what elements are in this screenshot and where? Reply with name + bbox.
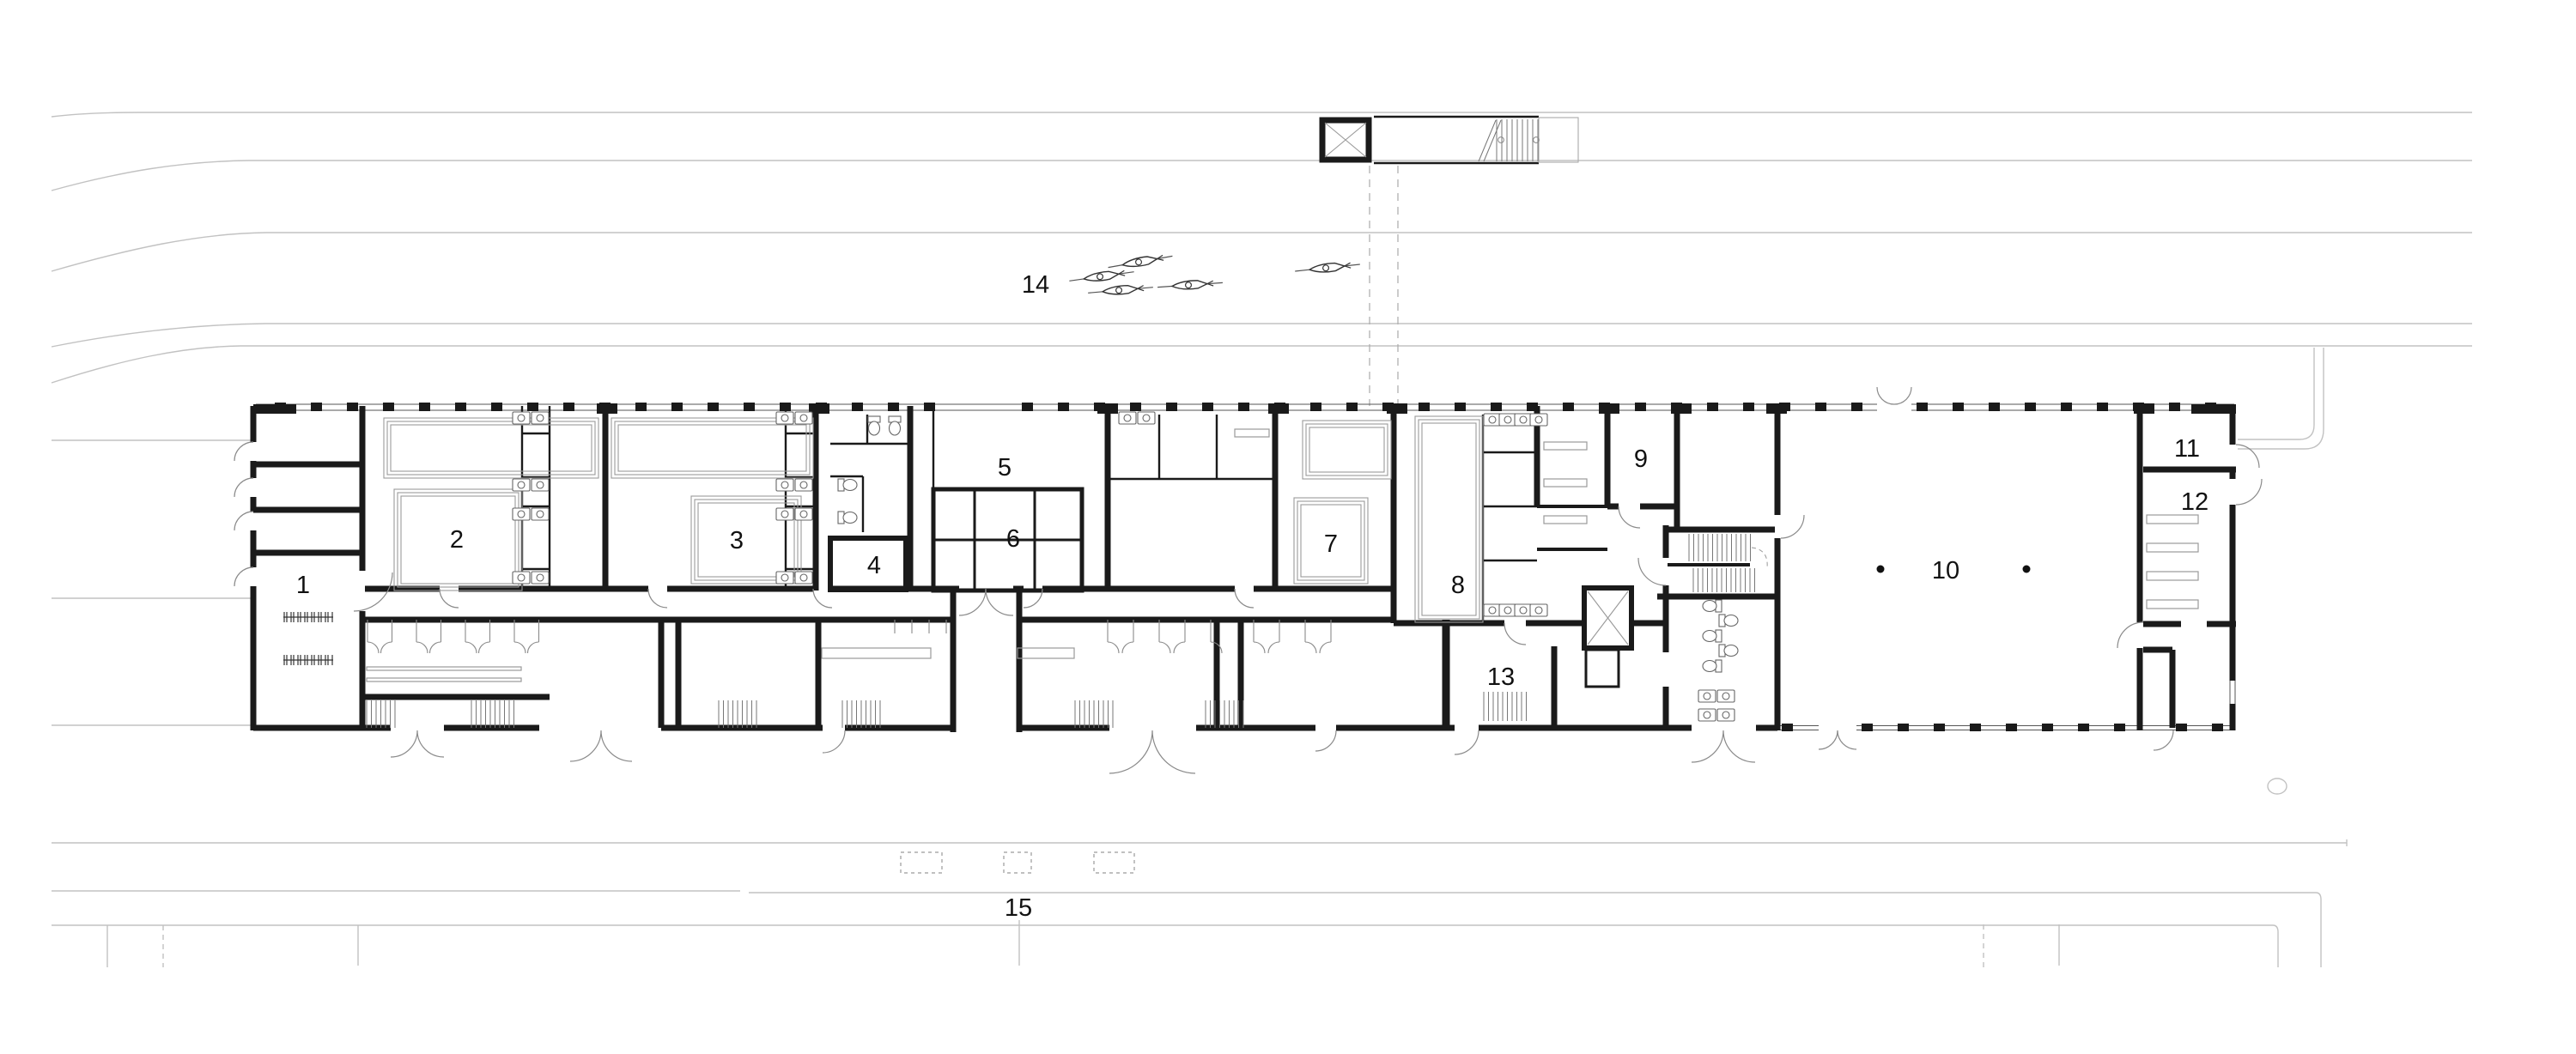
room-label-5: 5 bbox=[998, 454, 1012, 482]
room-label-12: 12 bbox=[2181, 488, 2208, 516]
room-label-7: 7 bbox=[1324, 530, 1338, 558]
room-label-13: 13 bbox=[1487, 663, 1515, 691]
room-number-labels: 1 2 3 4 5 6 7 8 9 10 11 12 13 14 15 bbox=[296, 271, 2208, 922]
room-label-8: 8 bbox=[1451, 572, 1465, 599]
elevator-x-icon bbox=[1588, 591, 1628, 645]
elevator-shaft bbox=[1584, 588, 1631, 687]
room-label-2: 2 bbox=[450, 526, 464, 554]
room-label-1: 1 bbox=[296, 572, 310, 599]
room-label-6: 6 bbox=[1006, 525, 1020, 553]
site-road-lines bbox=[52, 112, 2472, 968]
stair-walkline bbox=[1752, 548, 1767, 568]
connection-dashed-line bbox=[1370, 166, 1398, 406]
stair-treads bbox=[367, 534, 1755, 728]
floor-plan: 1 2 3 4 5 6 7 8 9 10 11 12 13 14 15 bbox=[0, 0, 2576, 1054]
area-label-14: 14 bbox=[1022, 271, 1049, 299]
stair-treads bbox=[1497, 119, 1538, 161]
coat-rack-icon bbox=[283, 612, 333, 622]
dashed-parking-bay bbox=[901, 852, 1134, 873]
room-label-11: 11 bbox=[2174, 435, 2200, 463]
area-label-15: 15 bbox=[1005, 894, 1032, 922]
boats-group bbox=[1069, 252, 1361, 297]
coat-rack-icon bbox=[283, 655, 333, 665]
room-label-10: 10 bbox=[1932, 557, 1959, 585]
room-label-3: 3 bbox=[730, 527, 744, 554]
room-label-4: 4 bbox=[867, 552, 881, 579]
benches-shelves bbox=[367, 429, 2198, 681]
room-label-9: 9 bbox=[1634, 445, 1648, 473]
